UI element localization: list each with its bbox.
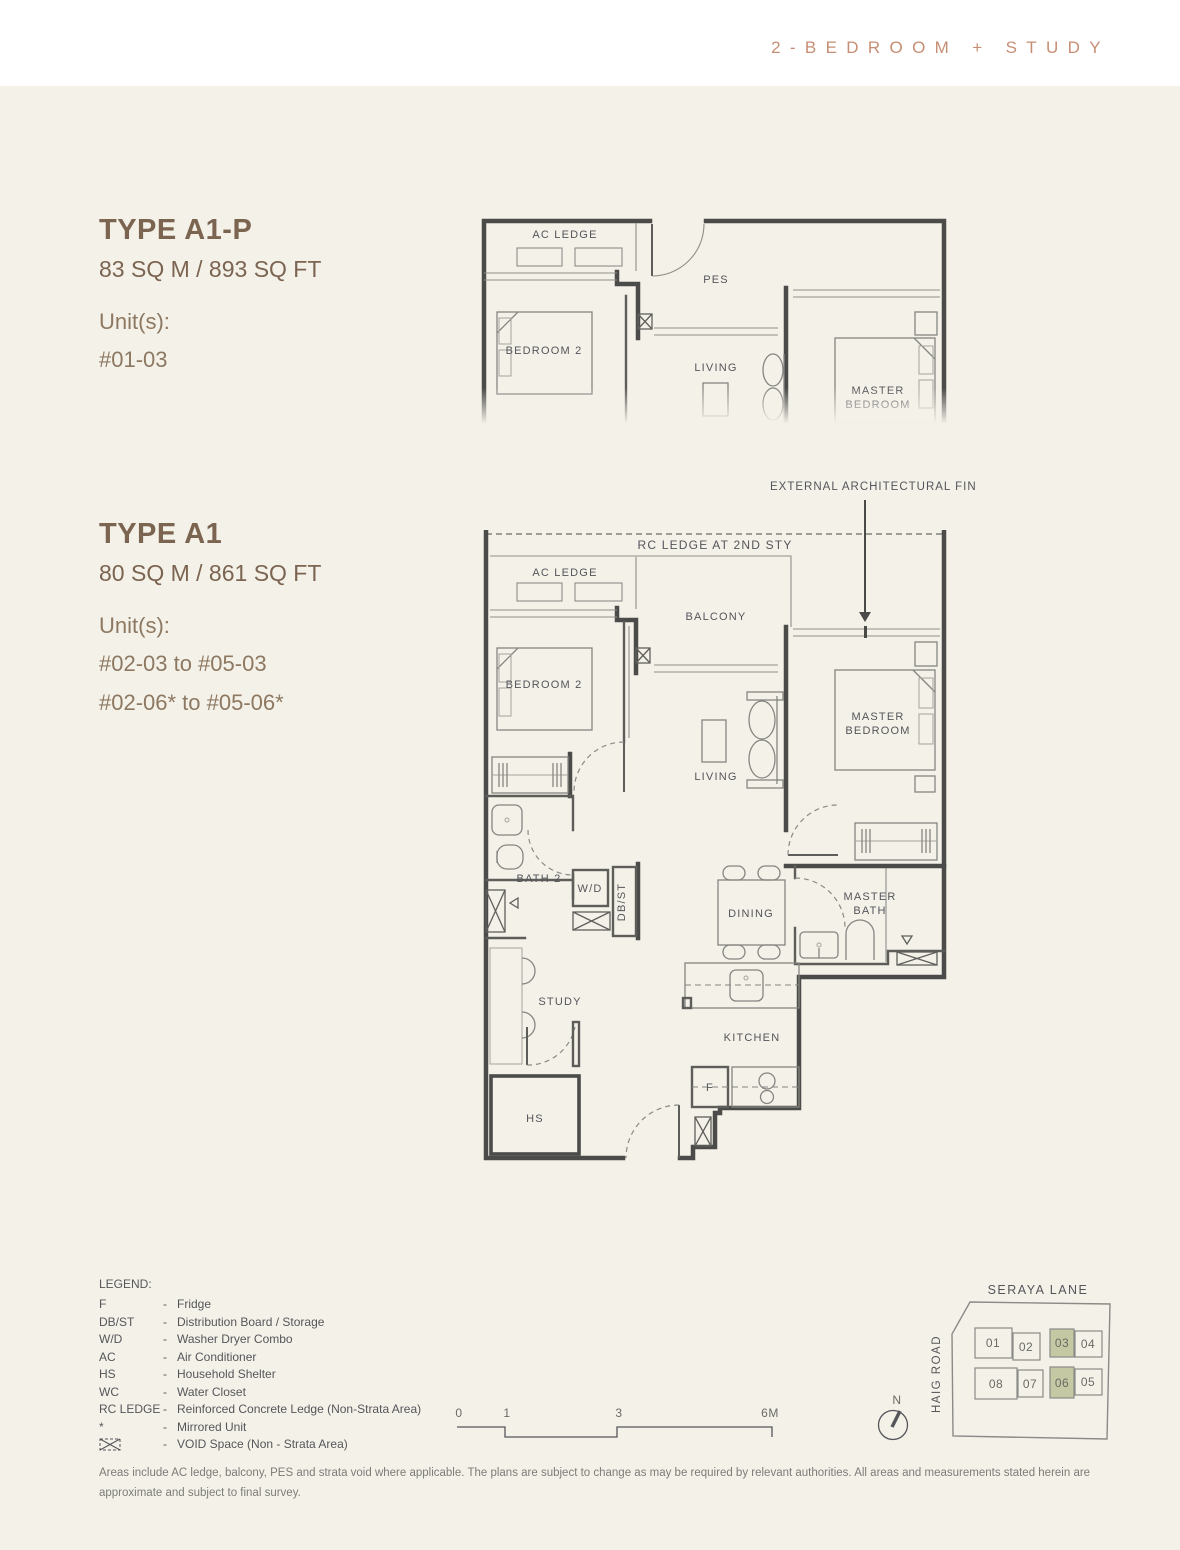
label-fridge: F [706,1082,714,1094]
bedroom2-wardrobe [492,757,568,793]
legend-key: DB/ST [99,1316,163,1328]
walls [486,532,944,1158]
legend-desc: Reinforced Concrete Ledge (Non-Strata Ar… [177,1403,421,1415]
legend-key: RC LEDGE [99,1403,163,1415]
label-master-1: MASTER [851,711,904,723]
void-box-wd [573,912,610,930]
page-title: 2-BEDROOM + STUDY [771,38,1110,58]
scale-tick: 0 [455,1406,462,1420]
unit-type-area: 80 SQ M / 861 SQ FT [99,560,321,587]
unit-number: #02-06* to #05-06* [99,690,321,716]
scale-tick: 3 [615,1406,622,1420]
site-block-05: 05 [1081,1375,1095,1389]
bath2 [492,805,573,875]
void-space-icon [99,1438,163,1453]
legend-desc: Distribution Board / Storage [177,1316,324,1328]
street-seraya-lane: SERAYA LANE [988,1283,1089,1297]
unit-number: #01-03 [99,347,321,373]
floorplan-a1: RC LEDGE AT 2ND STY [478,530,952,1170]
legend-key: * [99,1421,163,1433]
ac-ledge [517,583,622,601]
site-block-01: 01 [986,1336,1000,1350]
entry-door [626,1105,679,1158]
units-label: Unit(s): [99,613,321,639]
street-haig-road: HAIG ROAD [931,1335,943,1413]
fin-attachment [864,626,867,638]
compass-n-label: N [892,1393,901,1407]
label-masterbath-1: MASTER [843,891,896,903]
sofa [747,692,783,788]
label-kitchen: KITCHEN [724,1032,781,1044]
label-bedroom2: BEDROOM 2 [506,345,583,357]
master-bedroom-door [788,805,838,855]
label-living: LIVING [694,362,737,374]
top-white-band: 2-BEDROOM + STUDY [0,0,1180,86]
label-bath2: BATH 2 [517,873,562,885]
scale-bar: 0 1 3 6M [450,1402,790,1452]
label-ac-ledge: AC LEDGE [532,567,597,579]
label-dbst: DB/ST [616,883,628,921]
scale-tick: 1 [503,1406,510,1420]
label-master-2: BEDROOM [845,725,910,737]
label-study: STUDY [538,996,581,1008]
site-block-04: 04 [1081,1337,1095,1351]
pes-door [652,224,704,276]
legend-title: LEGEND: [99,1277,421,1291]
void-box-masterbath [897,952,937,965]
unit-type-a1-block: TYPE A1 80 SQ M / 861 SQ FT Unit(s): #02… [99,518,321,729]
legend-desc: Washer Dryer Combo [177,1333,293,1345]
label-wd: W/D [578,883,603,895]
legend-desc: Mirrored Unit [177,1421,246,1433]
unit-type-name: TYPE A1-P [99,214,321,247]
site-block-02: 02 [1019,1340,1033,1354]
label-masterbath-2: BATH [853,905,886,917]
study-desk [490,948,535,1064]
brochure-page: 2-BEDROOM + STUDY TYPE A1-P 83 SQ M / 89… [0,0,1180,1550]
site-block-03: 03 [1055,1336,1069,1350]
label-rc-ledge: RC LEDGE AT 2ND STY [637,538,792,552]
site-block-06: 06 [1055,1376,1069,1390]
bedroom2-door [574,742,624,792]
legend-desc: Water Closet [177,1386,246,1398]
compass-needle [892,1411,900,1427]
label-balcony: BALCONY [686,611,747,623]
site-block-08: 08 [989,1377,1003,1391]
legend-desc: VOID Space (Non - Strata Area) [177,1438,348,1453]
legend-desc: Air Conditioner [177,1351,256,1363]
north-compass: N [870,1392,918,1451]
site-plan: SERAYA LANE HAIG ROAD 01 02 03 04 08 07 … [930,1278,1140,1455]
units-label: Unit(s): [99,309,321,335]
legend-desc: Household Shelter [177,1368,276,1380]
legend-key: F [99,1298,163,1310]
label-bedroom2: BEDROOM 2 [506,679,583,691]
label-pes: PES [703,274,729,286]
annotation-external-fin: EXTERNAL ARCHITECTURAL FIN [770,481,977,493]
unit-type-area: 83 SQ M / 893 SQ FT [99,256,321,283]
label-ac-ledge: AC LEDGE [532,229,597,241]
scale-line [457,1427,772,1437]
unit-type-a1p-block: TYPE A1-P 83 SQ M / 893 SQ FT Unit(s): #… [99,214,321,386]
site-block-07: 07 [1023,1377,1037,1391]
scale-tick: 6M [761,1406,779,1420]
legend-key: HS [99,1368,163,1380]
plan-fade [478,388,952,424]
tv-console [702,720,726,762]
kitchen-island [683,963,799,1008]
label-dining: DINING [728,908,774,920]
unit-type-name: TYPE A1 [99,518,321,551]
void-box-left [486,890,518,932]
legend: LEGEND: F-Fridge DB/ST-Distribution Boar… [99,1277,421,1459]
label-living: LIVING [694,771,737,783]
void-box-entry [695,1117,711,1146]
legend-key: AC [99,1351,163,1363]
master-wardrobe [855,823,937,860]
legend-key: W/D [99,1333,163,1345]
unit-number: #02-03 to #05-03 [99,651,321,677]
disclaimer-text: Areas include AC ledge, balcony, PES and… [99,1463,1111,1503]
legend-key: WC [99,1386,163,1398]
legend-desc: Fridge [177,1298,211,1310]
label-hs: HS [526,1113,544,1125]
